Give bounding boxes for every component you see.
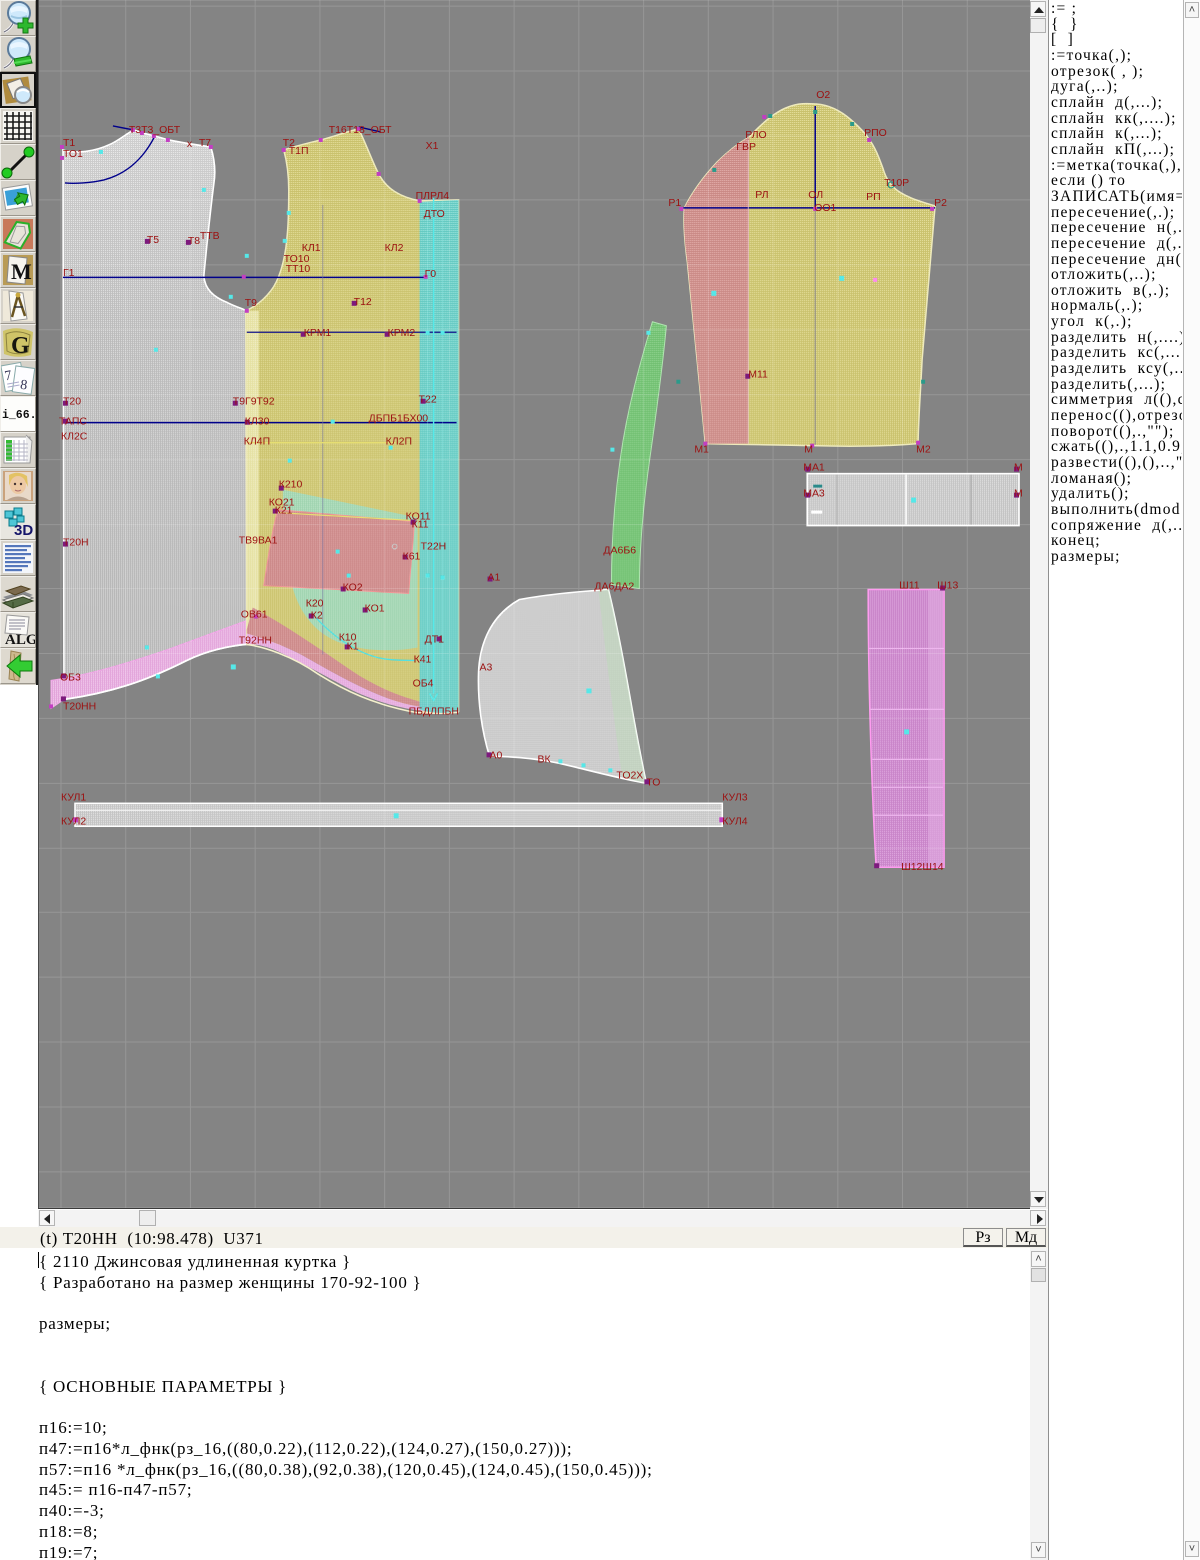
svg-text:РПО: РПО	[864, 128, 887, 139]
svg-text:ДТ1: ДТ1	[425, 634, 444, 645]
svg-text:РП: РП	[866, 192, 881, 203]
svg-text:Ш12Ш14: Ш12Ш14	[901, 862, 944, 873]
svg-text:КО2: КО2	[343, 583, 363, 594]
svg-text:Т22Н: Т22Н	[421, 542, 447, 553]
svg-text:К1: К1	[347, 641, 359, 652]
svg-text:Т9: Т9	[245, 298, 257, 309]
svg-text:Т20: Т20	[63, 397, 81, 408]
svg-text:Т7: Т7	[199, 138, 211, 149]
svg-text:ОО1: ОО1	[814, 203, 836, 214]
svg-text:КУЛ4: КУЛ4	[722, 816, 747, 827]
svg-text:ТО1: ТО1	[63, 149, 83, 160]
svg-text:КРМ2: КРМ2	[388, 328, 416, 339]
svg-text:К20: К20	[306, 598, 324, 609]
svg-text:ОВ61: ОВ61	[241, 609, 268, 620]
svg-text:Т8: Т8	[188, 236, 200, 247]
svg-text:Г1: Г1	[63, 268, 75, 279]
svg-text:ОБ3: ОБ3	[60, 672, 81, 683]
svg-text:ДТО: ДТО	[424, 209, 445, 220]
svg-text:МА3: МА3	[803, 489, 825, 500]
svg-text:КЛ1: КЛ1	[302, 243, 321, 254]
svg-text:ОЛ: ОЛ	[808, 190, 823, 201]
svg-text:А3: А3	[480, 662, 493, 673]
svg-text:Т1П: Т1П	[289, 146, 309, 157]
svg-text:Т1: Т1	[63, 138, 75, 149]
svg-text:ДБПБ1БХ00: ДБПБ1БХ00	[369, 414, 429, 425]
svg-text:КЛ2: КЛ2	[385, 243, 404, 254]
svg-text:М: М	[1014, 489, 1023, 500]
svg-text:Т92НН: Т92НН	[239, 635, 272, 646]
svg-text:ТАПС: ТАПС	[59, 417, 87, 428]
svg-text:Т5: Т5	[147, 235, 159, 246]
svg-text:х: х	[187, 139, 193, 150]
svg-text:ГВР: ГВР	[736, 142, 756, 153]
svg-text:М2: М2	[916, 445, 931, 456]
svg-text:G: G	[11, 333, 30, 359]
svg-text:КЛ4П: КЛ4П	[244, 437, 270, 448]
svg-text:К61: К61	[403, 552, 421, 563]
svg-text:i_66.: i_66.	[2, 409, 35, 422]
svg-text:М: М	[1014, 463, 1023, 474]
svg-text:ДА6ДА2: ДА6ДА2	[594, 582, 634, 593]
svg-text:М11: М11	[748, 370, 768, 381]
svg-text:МА1: МА1	[803, 463, 825, 474]
svg-text:КЛ2П: КЛ2П	[386, 437, 412, 448]
svg-text:Г0: Г0	[425, 269, 437, 280]
svg-text:M: M	[11, 259, 32, 284]
svg-text:Т3Т3_ОБТ: Т3Т3_ОБТ	[129, 125, 181, 136]
svg-text:М1: М1	[694, 445, 709, 456]
svg-text:Т10Р: Т10Р	[884, 178, 909, 189]
svg-text:КЛ2С: КЛ2С	[61, 432, 88, 443]
svg-text:Т20Н: Т20Н	[63, 538, 89, 549]
svg-text:Р2: Р2	[934, 198, 947, 209]
svg-text:3D: 3D	[14, 522, 33, 539]
svg-text:ТО2Х: ТО2Х	[616, 770, 643, 781]
svg-text:К2: К2	[311, 610, 323, 621]
svg-text:Т16Т18_ОБТ: Т16Т18_ОБТ	[329, 125, 392, 136]
svg-text:Т12: Т12	[354, 297, 372, 308]
svg-text:ВК: ВК	[537, 754, 551, 765]
svg-text:ТТ10: ТТ10	[286, 264, 311, 275]
svg-text:Т20НН: Т20НН	[63, 701, 96, 712]
svg-text:КРМ1: КРМ1	[304, 328, 332, 339]
svg-text:ПБДЛПБН: ПБДЛПБН	[409, 706, 459, 717]
svg-text:ПЛРЛ4: ПЛРЛ4	[416, 191, 450, 202]
svg-text:ДА6Б6: ДА6Б6	[603, 546, 636, 557]
svg-text:Р1: Р1	[668, 198, 681, 209]
svg-text:КУЛ1: КУЛ1	[61, 792, 86, 803]
svg-text:Х1: Х1	[426, 141, 439, 152]
svg-text:КО1: КО1	[365, 603, 385, 614]
svg-text:Ш13: Ш13	[937, 581, 958, 592]
svg-text:РЛО: РЛО	[745, 130, 766, 141]
svg-text:А0: А0	[490, 750, 503, 761]
svg-text:К210: К210	[279, 480, 303, 491]
svg-text:К21: К21	[275, 506, 293, 517]
svg-text:А1: А1	[488, 573, 501, 584]
svg-text:ТВ9ВА1: ТВ9ВА1	[239, 536, 278, 547]
svg-text:ALG: ALG	[5, 632, 35, 647]
svg-text:ТО: ТО	[646, 777, 660, 788]
svg-text:Т9Г9Т92: Т9Г9Т92	[233, 397, 275, 408]
svg-text:М: М	[804, 445, 813, 456]
svg-text:КЛ30: КЛ30	[245, 417, 270, 428]
svg-text:К41: К41	[414, 654, 432, 665]
svg-text:ОБ4: ОБ4	[413, 678, 434, 689]
svg-text:РЛ: РЛ	[755, 190, 768, 201]
svg-text:ТТВ: ТТВ	[200, 231, 220, 242]
svg-text:О2: О2	[816, 90, 830, 101]
svg-text:К11: К11	[412, 520, 429, 531]
svg-text:Ш11: Ш11	[899, 581, 920, 592]
svg-text:КУЛ2: КУЛ2	[61, 816, 86, 827]
svg-text:КУЛ3: КУЛ3	[722, 792, 747, 803]
svg-text:Т22: Т22	[419, 395, 437, 406]
